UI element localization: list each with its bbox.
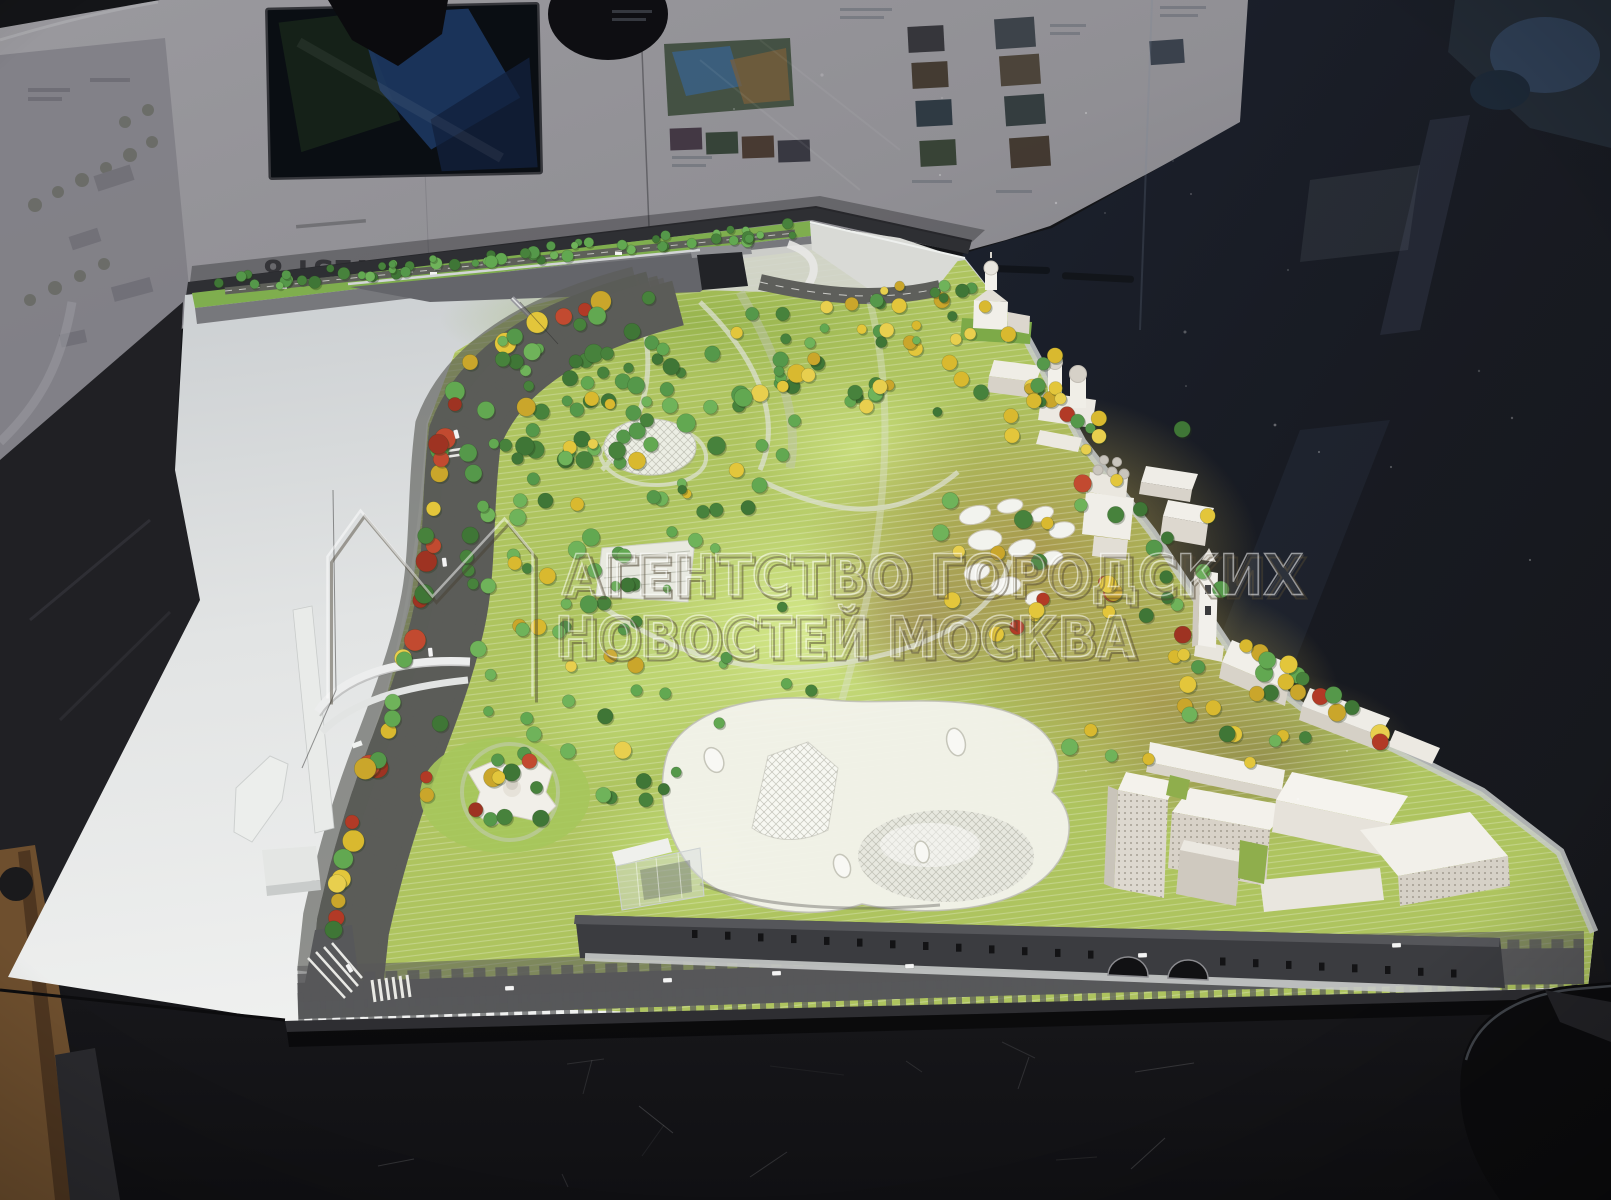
vignette: [0, 0, 1611, 1200]
photo-stage: WEST 8: [0, 0, 1611, 1200]
scene-svg: WEST 8: [0, 0, 1611, 1200]
